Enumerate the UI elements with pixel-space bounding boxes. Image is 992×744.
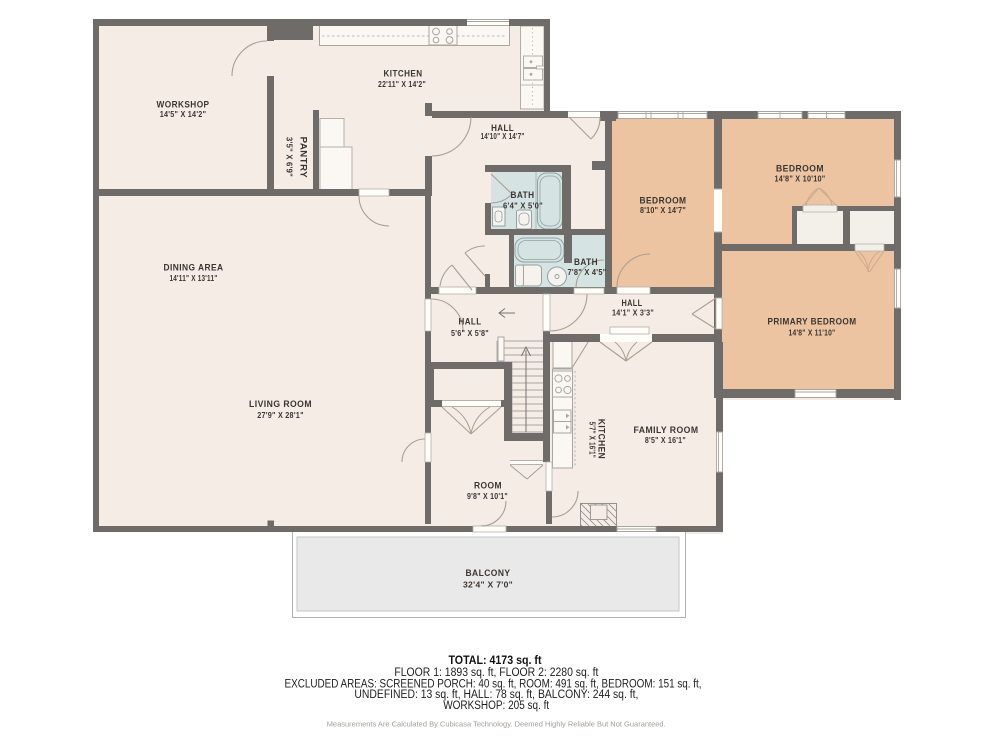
svg-text:8'10" X 14'7": 8'10" X 14'7" (640, 205, 686, 215)
svg-text:3'5" X 6'9": 3'5" X 6'9" (285, 137, 295, 177)
svg-text:8'5" X 16'1": 8'5" X 16'1" (645, 435, 686, 445)
svg-text:6'4" X 5'0": 6'4" X 5'0" (503, 200, 543, 210)
svg-text:PANTRY: PANTRY (298, 137, 309, 179)
svg-text:BALCONY: BALCONY (466, 568, 511, 579)
svg-text:KITCHEN: KITCHEN (384, 68, 423, 79)
svg-text:27'9" X 28'1": 27'9" X 28'1" (257, 410, 304, 420)
svg-text:9'8" X 10'1": 9'8" X 10'1" (467, 491, 508, 501)
svg-text:WORKSHOP: 205 sq. ft: WORKSHOP: 205 sq. ft (443, 700, 550, 712)
svg-text:PRIMARY BEDROOM: PRIMARY BEDROOM (768, 316, 857, 327)
svg-text:7'8" X 4'5": 7'8" X 4'5" (568, 267, 607, 277)
svg-text:5'6" X 5'8": 5'6" X 5'8" (451, 328, 489, 338)
svg-text:14'11" X 13'11": 14'11" X 13'11" (170, 273, 218, 283)
svg-text:14'1" X 3'3": 14'1" X 3'3" (612, 308, 654, 318)
svg-text:HALL: HALL (459, 316, 482, 327)
svg-text:22'11" X 14'2": 22'11" X 14'2" (378, 79, 426, 89)
svg-text:FLOOR 1: 1893 sq. ft, FLOOR 2:: FLOOR 1: 1893 sq. ft, FLOOR 2: 2280 sq. … (394, 667, 599, 679)
svg-text:Measurements Are Calculated By: Measurements Are Calculated By Cubicasa … (327, 719, 666, 728)
svg-text:LIVING ROOM: LIVING ROOM (249, 399, 312, 410)
svg-text:14'8" X 10'10": 14'8" X 10'10" (775, 174, 826, 184)
svg-text:5'7" X 16'1": 5'7" X 16'1" (587, 422, 597, 458)
svg-text:14'5" X 14'2": 14'5" X 14'2" (160, 109, 207, 119)
svg-text:14'10" X 14'7": 14'10" X 14'7" (481, 131, 525, 141)
svg-text:TOTAL: 4173 sq. ft: TOTAL: 4173 sq. ft (449, 653, 542, 667)
svg-text:32'4" X 7'0": 32'4" X 7'0" (463, 580, 513, 590)
svg-text:14'8" X 11'10": 14'8" X 11'10" (789, 328, 836, 338)
